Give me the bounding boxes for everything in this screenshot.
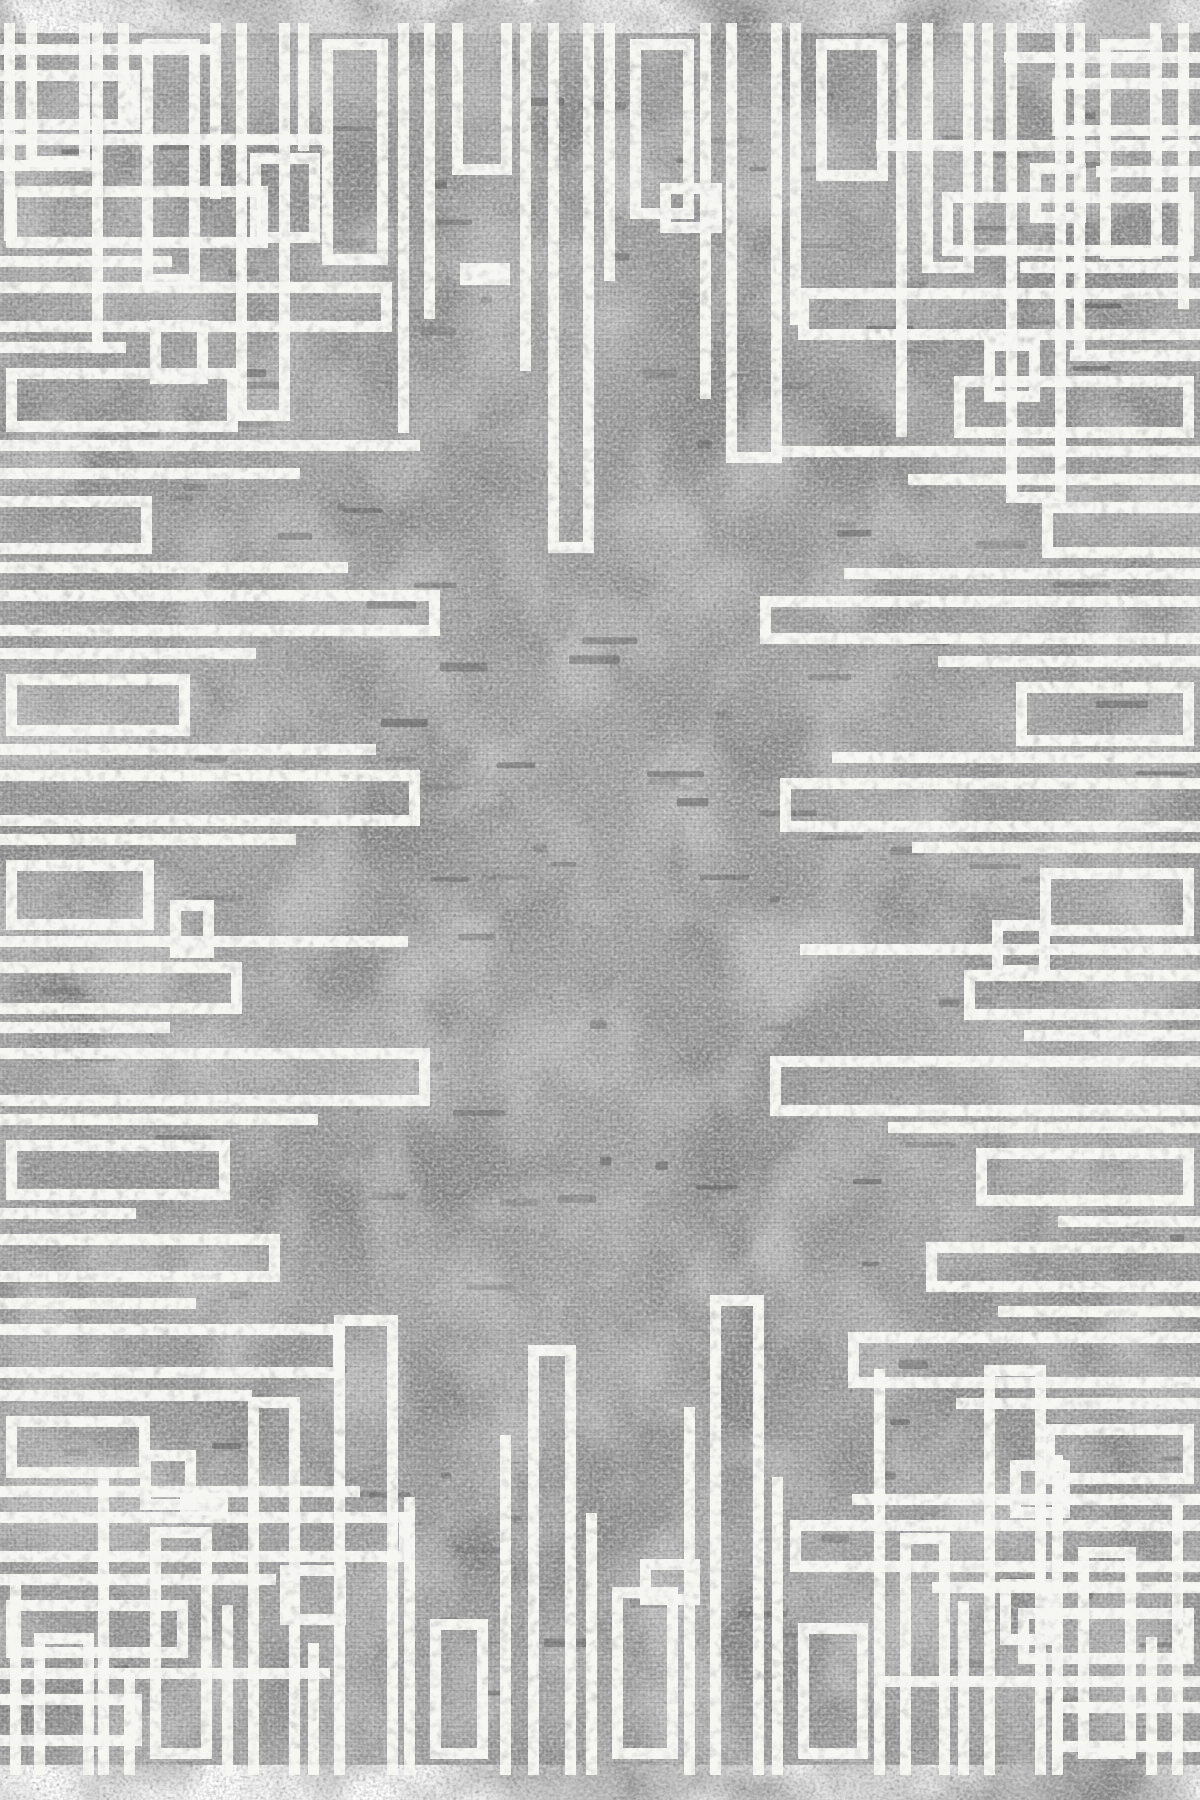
stitch-mark [861, 1262, 879, 1267]
stitch-mark [905, 1142, 955, 1148]
stitch-mark [466, 1285, 514, 1291]
pattern-u-right [753, 1295, 764, 1775]
stitch-mark [367, 601, 417, 609]
pattern-bar [998, 1306, 1200, 1317]
pattern-bar [1070, 350, 1200, 361]
pattern-bar [0, 1574, 276, 1585]
stitch-mark [976, 541, 1026, 549]
stitch-mark [821, 1535, 849, 1543]
stitch-mark [647, 771, 704, 777]
pattern-u-right [0, 1551, 410, 1562]
pattern-u-base [790, 1520, 801, 1572]
pattern-bar [772, 1477, 783, 1775]
stitch-mark [64, 1448, 87, 1456]
pattern-u-right [798, 329, 1200, 340]
pattern-u-base [429, 590, 440, 636]
rug-product-image [0, 0, 1200, 1800]
pattern-u-base [129, 70, 140, 130]
pattern-bar [0, 440, 420, 451]
stitch-mark [455, 1547, 503, 1553]
stitch-mark [481, 297, 492, 303]
pattern-bar [0, 342, 126, 353]
pattern-u-right [0, 625, 440, 636]
pattern-u-left [0, 70, 140, 81]
pattern-u-right [770, 1105, 1200, 1116]
pattern-bar [790, 23, 801, 325]
stitch-mark [414, 583, 457, 588]
rug-canvas [0, 0, 1200, 1800]
pattern-bar [0, 936, 408, 947]
stitch-mark [372, 1193, 406, 1200]
pattern-u-right [848, 1377, 1200, 1388]
pattern-u-right [790, 1561, 1200, 1572]
stitch-mark [481, 875, 530, 879]
stitch-mark [550, 862, 576, 867]
stitch-mark [648, 778, 681, 785]
pattern-u-left [726, 23, 737, 463]
stitch-mark [970, 864, 1021, 869]
stitch-mark [715, 711, 732, 719]
stitch-mark [43, 988, 82, 994]
pattern-u-left [236, 23, 247, 421]
pattern-u-right [1052, 125, 1200, 136]
stitch-mark [195, 755, 227, 763]
stitch-mark [600, 1157, 611, 1165]
stitch-mark [838, 407, 846, 411]
pattern-u-right [0, 543, 152, 554]
pattern-bar [0, 160, 98, 171]
stitch-mark [534, 845, 548, 853]
pattern-u-left [0, 282, 392, 293]
stitch-mark [458, 934, 493, 941]
pattern-u-left [926, 1242, 1200, 1253]
pattern-bar [932, 1582, 1200, 1593]
pattern-u-left [1052, 1702, 1200, 1713]
pattern-bar [308, 1643, 319, 1775]
pattern-bar [878, 1676, 1200, 1687]
pattern-bar [0, 1486, 360, 1497]
pattern-bar [298, 23, 309, 151]
pattern-u-right [0, 1095, 430, 1106]
pattern-u-left [760, 596, 1200, 607]
pattern-u-base [1052, 1702, 1063, 1752]
pattern-bar [938, 656, 1200, 667]
stitch-mark [700, 875, 749, 880]
pattern-bar [1074, 23, 1085, 355]
pattern-bar [852, 1494, 1200, 1505]
pattern-bar [0, 468, 300, 479]
stitch-mark [569, 655, 620, 664]
pattern-u-base [452, 164, 512, 175]
pattern-bar [0, 1668, 330, 1679]
pattern-u-right [964, 1009, 1200, 1020]
stitch-mark [558, 1195, 597, 1203]
pattern-u-base [770, 1056, 781, 1116]
pattern-bar [0, 1022, 170, 1033]
pattern-bar [832, 752, 1200, 763]
pattern-frame [466, 269, 505, 280]
pattern-bar [982, 23, 993, 201]
pattern-u-left [0, 496, 152, 507]
pattern-bar [0, 562, 348, 573]
stitch-mark [760, 1025, 792, 1031]
stitch-mark [441, 1472, 451, 1479]
pattern-u-left [334, 1315, 345, 1775]
pattern-bar [0, 744, 376, 755]
pattern-u-left [964, 970, 1200, 981]
pattern-bar [586, 1513, 597, 1775]
pattern-bar [0, 1208, 136, 1219]
pattern-bar [700, 23, 711, 399]
pattern-bar [500, 1435, 511, 1775]
pattern-u-base [548, 542, 594, 553]
pattern-u-base [248, 1397, 300, 1408]
pattern-u-base [399, 1512, 410, 1562]
pattern-bar [0, 134, 332, 145]
stitch-mark [582, 637, 637, 644]
pattern-bar [956, 1398, 1200, 1409]
pattern-u-right [780, 821, 1200, 832]
stitch-mark [155, 1135, 211, 1139]
pattern-u-base [419, 1048, 430, 1106]
pattern-u-right [387, 1315, 398, 1775]
stitch-mark [419, 784, 462, 789]
pattern-u-left [548, 23, 559, 553]
pattern-u-left [770, 1056, 1200, 1067]
pattern-bar [780, 446, 1200, 457]
pattern-u-base [798, 288, 809, 340]
stitch-mark [853, 1179, 882, 1184]
pattern-bar [1004, 52, 1200, 63]
stitch-mark [696, 1185, 738, 1190]
pattern-u-right [565, 1345, 576, 1775]
pattern-u-base [131, 1694, 142, 1746]
pattern-u-left [528, 1345, 539, 1775]
pattern-bar [424, 23, 435, 319]
stitch-mark [184, 484, 208, 491]
pattern-u-left [790, 1520, 1200, 1531]
pattern-u-base [726, 452, 782, 463]
pattern-u-right [583, 23, 594, 553]
pattern-u-right [0, 1003, 242, 1014]
pattern-bar [844, 568, 1200, 579]
stitch-mark [770, 896, 780, 902]
pattern-bar [958, 1601, 969, 1775]
stitch-mark [440, 663, 488, 672]
pattern-u-left [0, 1694, 142, 1705]
stitch-mark [798, 244, 842, 248]
stitch-mark [780, 383, 811, 389]
pattern-u-right [1042, 547, 1200, 558]
pattern-u-left [798, 288, 1200, 299]
pattern-u-base [926, 1242, 937, 1292]
pattern-u-left [848, 1332, 1200, 1343]
pattern-u-right [0, 1735, 142, 1746]
stitch-mark [212, 1443, 241, 1449]
pattern-bar [896, 23, 907, 437]
pattern-u-right [0, 119, 140, 130]
stitch-mark [698, 440, 712, 449]
stitch-mark [385, 757, 416, 762]
stitch-mark [655, 1161, 667, 1170]
pattern-u-left [0, 590, 440, 601]
pattern-u-right [0, 1367, 344, 1378]
pattern-bar [1024, 1030, 1200, 1041]
pattern-u-left [0, 962, 242, 973]
stitch-mark [230, 1291, 248, 1299]
pattern-bar [0, 44, 214, 55]
pattern-u-base [760, 596, 771, 644]
pattern-u-base [922, 262, 974, 273]
stitch-mark [381, 719, 428, 727]
pattern-u-base [528, 1345, 576, 1356]
stitch-mark [343, 508, 382, 513]
stitch-mark [808, 674, 851, 680]
stitch-mark [497, 762, 536, 768]
pattern-u-base [964, 970, 975, 1020]
stitch-mark [208, 575, 217, 581]
stitch-mark [939, 1000, 959, 1008]
stitch-mark [1053, 582, 1111, 588]
pattern-u-left [248, 1397, 259, 1775]
stitch-mark [431, 877, 470, 882]
pattern-bar [222, 1605, 233, 1775]
pattern-bar [684, 1407, 695, 1775]
pattern-u-base [1042, 502, 1053, 558]
pattern-bar [912, 842, 1200, 853]
pattern-u-base [333, 1324, 344, 1378]
stitch-mark [750, 167, 767, 171]
pattern-bar [0, 1298, 196, 1309]
pattern-u-right [926, 1281, 1200, 1292]
pattern-bar [0, 256, 172, 267]
stitch-mark [590, 1020, 607, 1029]
pattern-u-right [760, 633, 1200, 644]
stitch-mark [278, 533, 312, 540]
pattern-bar [0, 648, 256, 659]
pattern-bar [1020, 262, 1200, 273]
pattern-bar [1096, 166, 1200, 177]
stitch-mark [1073, 366, 1111, 371]
pattern-u-left [780, 778, 1200, 789]
stitch-mark [643, 370, 677, 379]
stitch-mark [453, 1110, 506, 1116]
pattern-bar [0, 1390, 252, 1401]
pattern-u-base [231, 962, 242, 1014]
stitch-mark [500, 1199, 538, 1206]
pattern-u-base [984, 1365, 1046, 1376]
pattern-bar [520, 23, 531, 371]
pattern-u-base [141, 496, 152, 554]
pattern-u-left [0, 1324, 344, 1335]
pattern-u-base [900, 1533, 950, 1544]
stitch-mark [436, 220, 472, 226]
pattern-u-base [381, 282, 392, 332]
pattern-bar [888, 1122, 1200, 1133]
pattern-u-right [501, 23, 512, 175]
stitch-mark [677, 798, 709, 806]
stitch-mark [1096, 701, 1148, 708]
pattern-u-base [1052, 78, 1063, 136]
stitch-mark [899, 1360, 928, 1369]
pattern-u-base [710, 1295, 764, 1306]
pattern-bar [1058, 1216, 1200, 1227]
pattern-u-left [0, 1234, 280, 1245]
stitch-mark [669, 785, 696, 790]
stitch-mark [253, 1225, 262, 1230]
pattern-u-right [279, 23, 290, 421]
pattern-u-left [0, 770, 420, 781]
stitch-mark [837, 530, 871, 537]
pattern-bar [0, 834, 296, 845]
pattern-bar [876, 140, 1200, 151]
stitch-mark [890, 1419, 910, 1425]
stitch-mark [421, 328, 456, 336]
pattern-u-left [710, 1295, 721, 1775]
stitch-mark [1161, 1457, 1183, 1462]
pattern-u-right [0, 815, 420, 826]
stitch-mark [1135, 771, 1186, 775]
pattern-u-base [1006, 492, 1066, 503]
pattern-bar [604, 23, 615, 281]
pattern-u-left [1052, 78, 1200, 89]
stitch-mark [170, 496, 194, 501]
pattern-u-right [1052, 1741, 1200, 1752]
pattern-bar [398, 23, 409, 433]
pattern-bar [1172, 1503, 1183, 1775]
pattern-bar [0, 1114, 318, 1125]
pattern-u-left [0, 1512, 410, 1523]
pattern-u-left [1042, 502, 1200, 513]
pattern-u-left [0, 1048, 430, 1059]
stitch-mark [829, 522, 855, 527]
pattern-u-right [771, 23, 782, 463]
pattern-u-left [452, 23, 463, 175]
pattern-u-base [780, 778, 791, 832]
pattern-u-base [34, 1633, 94, 1644]
pattern-u-base [409, 770, 420, 826]
pattern-bar [908, 474, 1200, 485]
pattern-u-right [0, 1271, 280, 1282]
stitch-mark [1170, 1234, 1184, 1241]
pattern-u-base [269, 1234, 280, 1282]
pattern-u-base [236, 410, 290, 421]
stitch-mark [816, 835, 863, 840]
stitch-mark [337, 503, 345, 510]
pattern-bar [800, 944, 1200, 955]
pattern-u-base [848, 1332, 859, 1388]
